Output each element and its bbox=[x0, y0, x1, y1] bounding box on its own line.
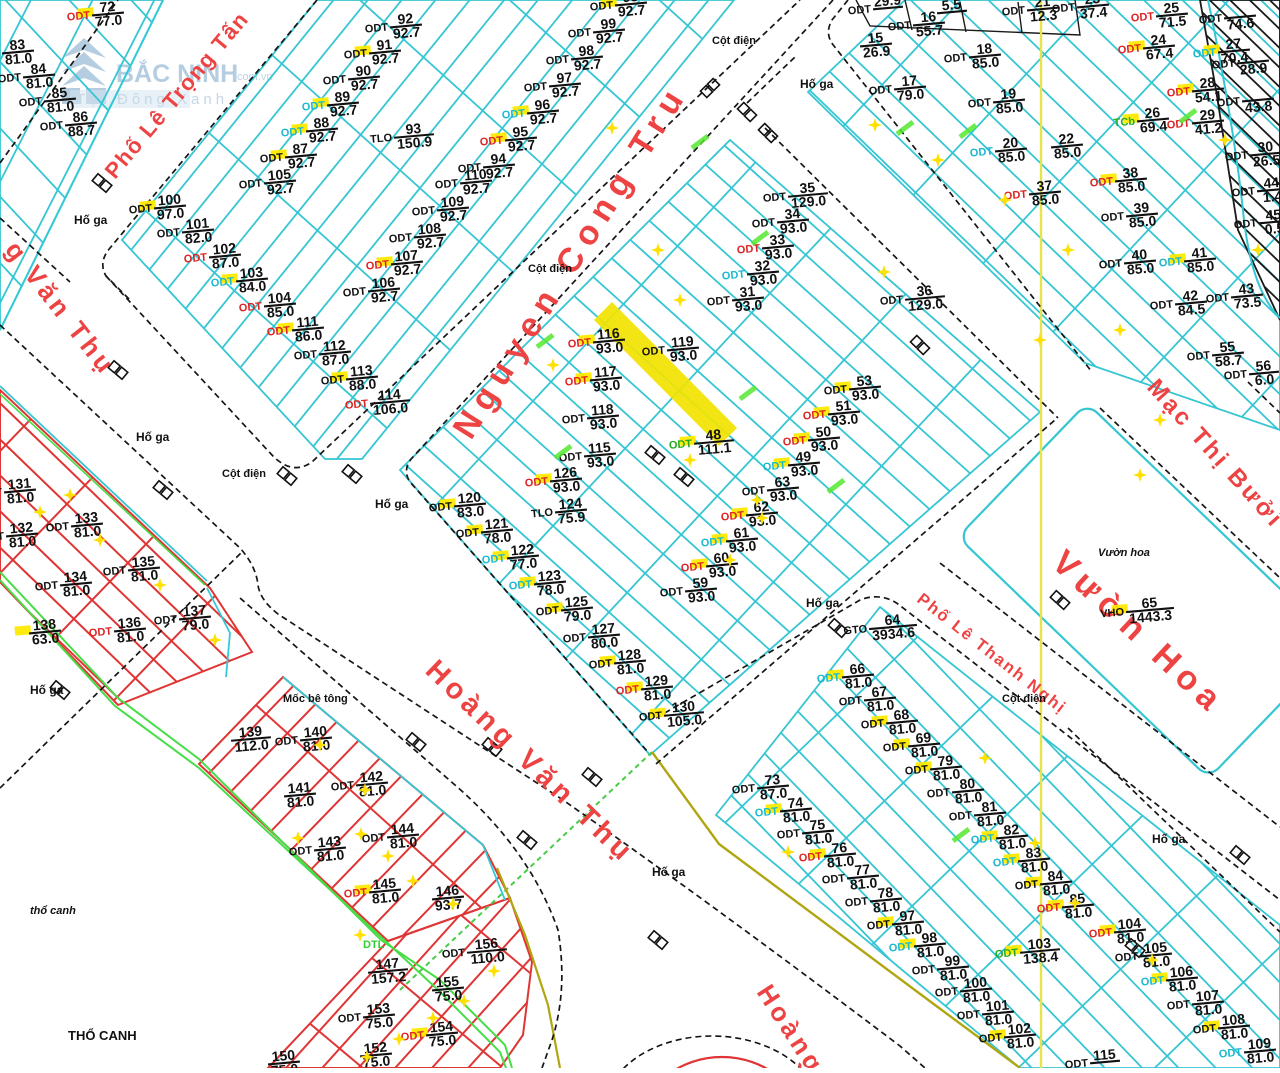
svg-text:41.2: 41.2 bbox=[1194, 119, 1223, 137]
svg-text:ODT: ODT bbox=[1089, 176, 1113, 190]
svg-text:93.0: 93.0 bbox=[769, 486, 798, 504]
svg-text:TLO: TLO bbox=[531, 507, 554, 521]
svg-text:ODT: ODT bbox=[280, 126, 304, 140]
svg-text:ODT: ODT bbox=[1001, 5, 1025, 19]
svg-text:ODT: ODT bbox=[1088, 927, 1112, 941]
svg-text:ODT: ODT bbox=[1166, 999, 1190, 1013]
svg-text:78.0: 78.0 bbox=[483, 528, 512, 546]
svg-text:92.7: 92.7 bbox=[350, 75, 379, 93]
svg-text:93.0: 93.0 bbox=[790, 461, 819, 479]
svg-text:81.0: 81.0 bbox=[916, 942, 945, 960]
svg-text:85.0: 85.0 bbox=[1031, 190, 1060, 208]
svg-text:ODT: ODT bbox=[545, 54, 569, 68]
svg-text:92.7: 92.7 bbox=[439, 206, 468, 224]
svg-text:85.0: 85.0 bbox=[1186, 257, 1215, 275]
svg-text:ODT: ODT bbox=[274, 735, 298, 749]
svg-text:81.0: 81.0 bbox=[116, 627, 145, 645]
svg-text:ODT: ODT bbox=[259, 152, 283, 166]
svg-text:77.0: 77.0 bbox=[509, 554, 538, 572]
svg-text:92.7: 92.7 bbox=[573, 55, 602, 73]
svg-text:ODT: ODT bbox=[564, 375, 588, 389]
svg-text:81.0: 81.0 bbox=[389, 833, 418, 851]
svg-text:Mốc bê tông: Mốc bê tông bbox=[283, 693, 348, 705]
svg-text:ODT: ODT bbox=[501, 108, 525, 122]
svg-text:Cột điện: Cột điện bbox=[528, 263, 572, 275]
svg-text:93.0: 93.0 bbox=[586, 452, 615, 470]
svg-text:ODT: ODT bbox=[457, 162, 481, 176]
svg-text:ODT: ODT bbox=[782, 435, 806, 449]
svg-text:ODT: ODT bbox=[343, 887, 367, 901]
svg-text:ODT: ODT bbox=[400, 1030, 424, 1044]
svg-text:ODT: ODT bbox=[428, 501, 452, 515]
svg-text:ODT: ODT bbox=[153, 614, 177, 628]
svg-text:ODT: ODT bbox=[88, 626, 112, 640]
svg-text:86.0: 86.0 bbox=[294, 326, 323, 344]
svg-text:ODT: ODT bbox=[904, 764, 928, 778]
svg-text:75.0: 75.0 bbox=[365, 1013, 394, 1031]
svg-text:ODT: ODT bbox=[741, 485, 765, 499]
svg-text:85.0: 85.0 bbox=[266, 302, 295, 320]
svg-text:ODT: ODT bbox=[1224, 150, 1248, 164]
svg-text:110.0: 110.0 bbox=[470, 948, 506, 967]
svg-text:ODT: ODT bbox=[992, 856, 1016, 870]
svg-text:ODT: ODT bbox=[293, 349, 317, 363]
svg-text:ODT: ODT bbox=[288, 845, 312, 859]
svg-text:55.7: 55.7 bbox=[915, 21, 944, 39]
svg-text:112.0: 112.0 bbox=[234, 736, 270, 755]
svg-text:TCb: TCb bbox=[1113, 116, 1136, 130]
svg-text:ODT: ODT bbox=[1216, 96, 1240, 110]
svg-text:ODT: ODT bbox=[1186, 350, 1210, 364]
svg-text:ODT: ODT bbox=[1098, 258, 1122, 272]
svg-text:ODT: ODT bbox=[1158, 256, 1182, 270]
svg-text:Cột điện: Cột điện bbox=[1002, 693, 1046, 705]
svg-text:thổ canh: thổ canh bbox=[30, 905, 76, 917]
svg-text:81.0: 81.0 bbox=[866, 696, 895, 714]
svg-text:ODT: ODT bbox=[1231, 185, 1255, 199]
svg-text:ODT: ODT bbox=[659, 586, 683, 600]
svg-text:ODT: ODT bbox=[567, 27, 591, 41]
svg-text:ODT: ODT bbox=[66, 10, 90, 24]
svg-text:93.0: 93.0 bbox=[595, 338, 624, 356]
svg-text:ODT: ODT bbox=[798, 851, 822, 865]
svg-text:ODT: ODT bbox=[535, 605, 559, 619]
svg-text:ODT: ODT bbox=[776, 828, 800, 842]
svg-text:ODT: ODT bbox=[838, 695, 862, 709]
svg-text:92.7: 92.7 bbox=[266, 179, 295, 197]
svg-text:81.0: 81.0 bbox=[826, 852, 855, 870]
svg-text:84.0: 84.0 bbox=[238, 277, 267, 295]
svg-text:81.0: 81.0 bbox=[1064, 903, 1093, 921]
svg-text:81.0: 81.0 bbox=[976, 811, 1005, 829]
svg-text:ODT: ODT bbox=[879, 294, 903, 308]
svg-text:85.0: 85.0 bbox=[1128, 212, 1157, 230]
svg-text:85.0: 85.0 bbox=[1126, 259, 1155, 277]
svg-text:ODT: ODT bbox=[1198, 13, 1222, 27]
svg-text:ODT: ODT bbox=[911, 964, 935, 978]
svg-text:THỔ CANH: THỔ CANH bbox=[68, 1028, 137, 1043]
svg-text:Hố ga: Hố ga bbox=[74, 213, 108, 227]
svg-text:ODT: ODT bbox=[762, 191, 786, 205]
svg-text:ODT: ODT bbox=[18, 96, 42, 110]
svg-text:ODT: ODT bbox=[322, 74, 346, 88]
svg-text:81.0: 81.0 bbox=[8, 532, 37, 550]
svg-text:Hố ga: Hố ga bbox=[375, 497, 409, 511]
svg-text:ODT: ODT bbox=[1166, 86, 1190, 100]
svg-text:83.0: 83.0 bbox=[456, 502, 485, 520]
svg-text:85.0: 85.0 bbox=[1053, 143, 1082, 161]
svg-text:ODT: ODT bbox=[1218, 1047, 1242, 1061]
svg-text:ODT: ODT bbox=[1051, 2, 1075, 16]
svg-text:92.7: 92.7 bbox=[551, 82, 580, 100]
svg-text:Vườn hoa: Vườn hoa bbox=[1098, 547, 1150, 559]
svg-text:75.0: 75.0 bbox=[434, 986, 463, 1004]
svg-text:ODT: ODT bbox=[365, 259, 389, 273]
svg-text:87.0: 87.0 bbox=[759, 784, 788, 802]
svg-text:ODT: ODT bbox=[1233, 217, 1257, 231]
svg-text:ODT: ODT bbox=[561, 413, 585, 427]
svg-text:ODT: ODT bbox=[736, 243, 760, 257]
svg-text:ODT: ODT bbox=[816, 672, 840, 686]
svg-text:81.0: 81.0 bbox=[1246, 1048, 1275, 1066]
svg-text:ODT: ODT bbox=[994, 947, 1018, 961]
svg-text:ODT: ODT bbox=[337, 1012, 361, 1026]
svg-text:79.0: 79.0 bbox=[181, 615, 210, 633]
svg-text:ODT: ODT bbox=[969, 146, 993, 160]
svg-text:ODT: ODT bbox=[926, 787, 950, 801]
svg-text:ODT: ODT bbox=[156, 227, 180, 241]
svg-text:93.0: 93.0 bbox=[589, 414, 618, 432]
svg-text:ODT: ODT bbox=[523, 81, 547, 95]
svg-text:0.5: 0.5 bbox=[1264, 220, 1280, 238]
svg-text:ODT: ODT bbox=[762, 460, 786, 474]
svg-text:74.6: 74.6 bbox=[1226, 14, 1255, 32]
svg-text:81.0: 81.0 bbox=[1168, 976, 1197, 994]
svg-text:111.1: 111.1 bbox=[697, 439, 732, 458]
svg-text:92.7: 92.7 bbox=[371, 49, 400, 67]
svg-text:81.0: 81.0 bbox=[1194, 1000, 1223, 1018]
svg-text:ODT: ODT bbox=[821, 873, 845, 887]
svg-text:81.0: 81.0 bbox=[286, 792, 315, 810]
svg-text:Hố ga: Hố ga bbox=[806, 596, 840, 610]
svg-text:ODT: ODT bbox=[847, 3, 871, 17]
svg-text:81.0: 81.0 bbox=[25, 73, 54, 91]
svg-text:ODT: ODT bbox=[45, 521, 69, 535]
svg-text:81.0: 81.0 bbox=[998, 834, 1027, 852]
svg-text:88.0: 88.0 bbox=[348, 375, 377, 393]
svg-text:26.9: 26.9 bbox=[862, 42, 891, 60]
svg-text:ODT: ODT bbox=[668, 438, 692, 452]
svg-text:ODT: ODT bbox=[588, 658, 612, 672]
svg-text:75.0: 75.0 bbox=[428, 1031, 457, 1049]
svg-text:ODT: ODT bbox=[301, 100, 325, 114]
svg-text:78.0: 78.0 bbox=[536, 580, 565, 598]
svg-text:Hố ga: Hố ga bbox=[30, 683, 64, 697]
svg-text:ODT: ODT bbox=[34, 580, 58, 594]
svg-text:ODT: ODT bbox=[1130, 11, 1154, 25]
svg-text:1.4: 1.4 bbox=[1262, 188, 1280, 206]
svg-text:75.0: 75.0 bbox=[270, 1060, 299, 1068]
svg-text:81.0: 81.0 bbox=[616, 659, 645, 677]
svg-text:ODT: ODT bbox=[680, 561, 704, 575]
svg-text:81.0: 81.0 bbox=[954, 788, 983, 806]
svg-text:157.2: 157.2 bbox=[370, 968, 407, 987]
svg-text:81.0: 81.0 bbox=[872, 897, 901, 915]
svg-text:93.0: 93.0 bbox=[728, 537, 757, 555]
svg-text:ODT: ODT bbox=[330, 780, 354, 794]
svg-text:81.0: 81.0 bbox=[804, 829, 833, 847]
svg-text:81.0: 81.0 bbox=[1142, 952, 1171, 970]
svg-text:92.7: 92.7 bbox=[308, 127, 337, 145]
svg-text:Cột điện: Cột điện bbox=[712, 35, 756, 47]
svg-text:129.0: 129.0 bbox=[907, 295, 944, 314]
svg-text:82.0: 82.0 bbox=[184, 228, 213, 246]
svg-text:ODT: ODT bbox=[238, 301, 262, 315]
svg-text:ODT: ODT bbox=[1117, 43, 1141, 57]
svg-text:ODT: ODT bbox=[887, 20, 911, 34]
svg-text:92.7: 92.7 bbox=[392, 23, 421, 41]
svg-text:87.0: 87.0 bbox=[321, 350, 350, 368]
svg-text:81.0: 81.0 bbox=[844, 673, 873, 691]
svg-text:ODT: ODT bbox=[183, 252, 207, 266]
svg-text:ODT: ODT bbox=[128, 203, 152, 217]
svg-text:ODT: ODT bbox=[455, 527, 479, 541]
svg-text:Hố ga: Hố ga bbox=[1152, 832, 1186, 846]
svg-text:63.0: 63.0 bbox=[31, 629, 60, 647]
svg-text:81.0: 81.0 bbox=[932, 765, 961, 783]
svg-text:88.7: 88.7 bbox=[67, 121, 96, 139]
svg-text:81.0: 81.0 bbox=[1006, 1033, 1035, 1051]
svg-text:ODT: ODT bbox=[1192, 1023, 1216, 1037]
svg-text:92.7: 92.7 bbox=[485, 163, 514, 181]
svg-text:106.0: 106.0 bbox=[372, 399, 409, 418]
svg-text:93.0: 93.0 bbox=[734, 296, 763, 314]
svg-text:92.7: 92.7 bbox=[329, 101, 358, 119]
svg-text:ODT: ODT bbox=[481, 553, 505, 567]
svg-text:ODT: ODT bbox=[1192, 47, 1216, 61]
svg-text:ODT: ODT bbox=[39, 120, 63, 134]
svg-text:TLO: TLO bbox=[370, 132, 393, 146]
svg-text:VHO: VHO bbox=[1100, 606, 1125, 620]
svg-text:Cột điện: Cột điện bbox=[222, 468, 266, 480]
svg-text:73.5: 73.5 bbox=[1233, 293, 1262, 311]
svg-text:85.0: 85.0 bbox=[997, 147, 1026, 165]
svg-text:81.0: 81.0 bbox=[62, 581, 91, 599]
svg-text:92.7: 92.7 bbox=[462, 179, 491, 197]
svg-text:ODT: ODT bbox=[388, 232, 412, 246]
svg-text:ODT: ODT bbox=[238, 178, 262, 192]
svg-text:75.9: 75.9 bbox=[557, 508, 586, 526]
svg-text:93.0: 93.0 bbox=[592, 376, 621, 394]
svg-text:ODT: ODT bbox=[721, 269, 745, 283]
svg-text:ODT: ODT bbox=[882, 741, 906, 755]
svg-text:DTL: DTL bbox=[363, 939, 385, 951]
svg-text:81.0: 81.0 bbox=[1042, 880, 1071, 898]
svg-text:81.0: 81.0 bbox=[73, 522, 102, 540]
svg-text:85.0: 85.0 bbox=[1117, 177, 1146, 195]
svg-text:ODT: ODT bbox=[978, 1032, 1002, 1046]
svg-text:92.7: 92.7 bbox=[416, 233, 445, 251]
svg-text:ODT: ODT bbox=[720, 510, 744, 524]
svg-text:ODT: ODT bbox=[1149, 299, 1173, 313]
svg-text:87.0: 87.0 bbox=[211, 253, 240, 271]
svg-text:92.7: 92.7 bbox=[287, 153, 316, 171]
svg-text:ODT: ODT bbox=[210, 276, 234, 290]
svg-text:6.0: 6.0 bbox=[1254, 371, 1275, 389]
svg-text:ODT: ODT bbox=[641, 345, 665, 359]
svg-text:93.0: 93.0 bbox=[851, 385, 880, 403]
svg-text:ODT: ODT bbox=[364, 22, 388, 36]
svg-text:28.9: 28.9 bbox=[1239, 59, 1268, 77]
svg-text:ODT: ODT bbox=[844, 896, 868, 910]
svg-text:ODT: ODT bbox=[943, 52, 967, 66]
svg-text:ODT: ODT bbox=[751, 217, 775, 231]
svg-text:ODT: ODT bbox=[754, 806, 778, 820]
svg-text:ODT: ODT bbox=[567, 337, 591, 351]
svg-text:81.0: 81.0 bbox=[1116, 928, 1145, 946]
svg-text:ODT: ODT bbox=[967, 97, 991, 111]
svg-text:ODT: ODT bbox=[441, 947, 465, 961]
svg-text:ODT: ODT bbox=[731, 783, 755, 797]
svg-text:ODT: ODT bbox=[562, 632, 586, 646]
svg-text:ODT: ODT bbox=[434, 178, 458, 192]
svg-text:92.7: 92.7 bbox=[507, 136, 536, 154]
svg-text:ODT: ODT bbox=[638, 710, 662, 724]
svg-text:85.0: 85.0 bbox=[971, 53, 1000, 71]
svg-text:ODT: ODT bbox=[706, 295, 730, 309]
svg-text:79.0: 79.0 bbox=[563, 606, 592, 624]
svg-text:ODT: ODT bbox=[934, 986, 958, 1000]
svg-text:81.0: 81.0 bbox=[894, 920, 923, 938]
svg-text:84.5: 84.5 bbox=[1177, 300, 1206, 318]
svg-text:ODT: ODT bbox=[320, 374, 344, 388]
svg-text:ODT: ODT bbox=[589, 0, 613, 14]
svg-text:ODT: ODT bbox=[866, 919, 890, 933]
svg-text:150.9: 150.9 bbox=[396, 133, 433, 152]
svg-text:ODT: ODT bbox=[343, 48, 367, 62]
svg-text:80.0: 80.0 bbox=[590, 633, 619, 651]
svg-text:93.0: 93.0 bbox=[669, 346, 698, 364]
svg-text:79.0: 79.0 bbox=[896, 85, 925, 103]
svg-text:81.0: 81.0 bbox=[130, 566, 159, 584]
svg-text:81.0: 81.0 bbox=[1220, 1024, 1249, 1042]
svg-text:ODT: ODT bbox=[102, 565, 126, 579]
svg-text:ODT: ODT bbox=[1036, 902, 1060, 916]
svg-text:58.7: 58.7 bbox=[1214, 351, 1243, 369]
svg-text:ODT: ODT bbox=[1100, 211, 1124, 225]
svg-text:ODT: ODT bbox=[823, 384, 847, 398]
svg-text:ODT: ODT bbox=[970, 833, 994, 847]
svg-text:93.0: 93.0 bbox=[687, 587, 716, 605]
svg-text:81.0: 81.0 bbox=[849, 874, 878, 892]
svg-text:81.0: 81.0 bbox=[643, 685, 672, 703]
svg-text:Hố ga: Hố ga bbox=[800, 77, 834, 91]
svg-text:93.0: 93.0 bbox=[810, 436, 839, 454]
svg-text:81.0: 81.0 bbox=[910, 742, 939, 760]
svg-text:93.0: 93.0 bbox=[708, 562, 737, 580]
svg-text:92.7: 92.7 bbox=[529, 109, 558, 127]
svg-text:105.0: 105.0 bbox=[666, 711, 703, 730]
svg-text:ODT: ODT bbox=[342, 286, 366, 300]
svg-text:81.0: 81.0 bbox=[888, 719, 917, 737]
svg-text:ODT: ODT bbox=[615, 684, 639, 698]
svg-text:43.8: 43.8 bbox=[1244, 97, 1273, 115]
svg-text:92.7: 92.7 bbox=[370, 287, 399, 305]
svg-text:67.4: 67.4 bbox=[1145, 44, 1174, 62]
svg-text:ODT: ODT bbox=[802, 409, 826, 423]
svg-text:ODT: ODT bbox=[868, 84, 892, 98]
svg-text:ODT: ODT bbox=[1064, 1057, 1088, 1068]
svg-text:69.4: 69.4 bbox=[1139, 117, 1168, 135]
svg-text:ODT: ODT bbox=[266, 325, 290, 339]
svg-text:93.0: 93.0 bbox=[552, 477, 581, 495]
svg-text:ODT: ODT bbox=[508, 579, 532, 593]
svg-text:81.0: 81.0 bbox=[782, 807, 811, 825]
svg-text:ODT: ODT bbox=[1223, 368, 1247, 382]
svg-text:37.4: 37.4 bbox=[1079, 3, 1108, 21]
svg-text:81.0: 81.0 bbox=[4, 49, 33, 67]
svg-text:92.7: 92.7 bbox=[393, 260, 422, 278]
svg-text:ODT: ODT bbox=[1114, 951, 1138, 965]
svg-text:ODT: ODT bbox=[888, 941, 912, 955]
svg-text:ODT: ODT bbox=[0, 72, 22, 86]
svg-text:ODT: ODT bbox=[524, 476, 548, 490]
svg-text:Hố ga: Hố ga bbox=[652, 865, 686, 879]
svg-text:ODT: ODT bbox=[700, 536, 724, 550]
svg-text:71.5: 71.5 bbox=[1158, 12, 1187, 30]
svg-text:92.7: 92.7 bbox=[595, 28, 624, 46]
svg-text:ODT: ODT bbox=[479, 135, 503, 149]
svg-text:85.0: 85.0 bbox=[995, 98, 1024, 116]
svg-text:138.4: 138.4 bbox=[1022, 948, 1059, 967]
svg-text:81.0: 81.0 bbox=[1020, 857, 1049, 875]
svg-text:ODT: ODT bbox=[1140, 975, 1164, 989]
svg-text:77.0: 77.0 bbox=[94, 11, 123, 29]
svg-text:Hố ga: Hố ga bbox=[136, 430, 170, 444]
svg-text:81.0: 81.0 bbox=[6, 488, 35, 506]
svg-text:GTO: GTO bbox=[843, 623, 868, 637]
svg-text:97.0: 97.0 bbox=[156, 204, 185, 222]
svg-text:ODT: ODT bbox=[1211, 58, 1235, 72]
svg-text:ODT: ODT bbox=[860, 718, 884, 732]
svg-text:81.0: 81.0 bbox=[371, 888, 400, 906]
svg-text:26.5: 26.5 bbox=[1252, 151, 1280, 169]
svg-text:ODT: ODT bbox=[1205, 292, 1229, 306]
svg-text:81.0: 81.0 bbox=[46, 97, 75, 115]
svg-text:ODT: ODT bbox=[948, 810, 972, 824]
svg-text:ODT: ODT bbox=[344, 398, 368, 412]
svg-text:ODT: ODT bbox=[411, 205, 435, 219]
svg-text:81.0: 81.0 bbox=[316, 846, 345, 864]
svg-text:93.0: 93.0 bbox=[830, 410, 859, 428]
svg-text:ODT: ODT bbox=[956, 1009, 980, 1023]
svg-text:92.7: 92.7 bbox=[617, 1, 646, 19]
svg-text:ODT: ODT bbox=[1014, 879, 1038, 893]
